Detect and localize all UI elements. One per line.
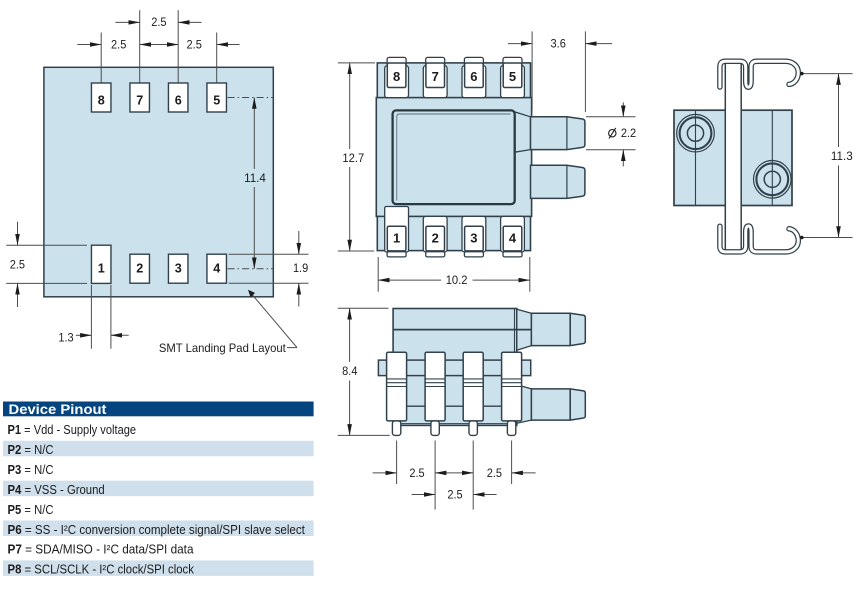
svg-text:2.2: 2.2: [621, 126, 636, 140]
svg-text:8: 8: [98, 93, 105, 107]
svg-text:3: 3: [175, 262, 182, 276]
svg-text:7: 7: [136, 93, 143, 107]
svg-text:1: 1: [98, 262, 105, 276]
svg-text:11.3: 11.3: [831, 149, 853, 163]
svg-text:2.5: 2.5: [447, 487, 462, 501]
svg-text:2: 2: [136, 262, 143, 276]
svg-text:3: 3: [470, 231, 477, 246]
svg-text:3.6: 3.6: [551, 36, 566, 50]
svg-text:P4 = VSS - Ground: P4 = VSS - Ground: [8, 483, 105, 497]
svg-text:Device Pinout: Device Pinout: [9, 402, 108, 417]
svg-text:P3 = N/C: P3 = N/C: [8, 463, 54, 477]
svg-text:2.5: 2.5: [10, 258, 25, 272]
svg-text:P1 = Vdd - Supply voltage: P1 = Vdd - Supply voltage: [8, 423, 137, 437]
svg-text:1.3: 1.3: [58, 330, 73, 344]
svg-text:SMT Landing Pad Layout: SMT Landing Pad Layout: [159, 341, 287, 355]
svg-text:8.4: 8.4: [342, 364, 357, 378]
svg-text:7: 7: [432, 69, 439, 84]
svg-text:P6 = SS - I²C conversion compl: P6 = SS - I²C conversion complete signal…: [8, 523, 306, 537]
svg-text:P2 = N/C: P2 = N/C: [8, 443, 54, 457]
svg-text:P8 = SCL/SCLK - I²C clock/SPI: P8 = SCL/SCLK - I²C clock/SPI clock: [8, 563, 195, 577]
svg-text:2.5: 2.5: [187, 37, 202, 51]
svg-text:1: 1: [393, 231, 400, 246]
svg-text:2.5: 2.5: [409, 466, 424, 480]
svg-text:12.7: 12.7: [342, 151, 364, 165]
svg-text:6: 6: [470, 69, 477, 84]
svg-text:11.4: 11.4: [244, 171, 266, 185]
svg-text:2.5: 2.5: [151, 15, 166, 29]
svg-text:2.5: 2.5: [111, 37, 126, 51]
svg-text:5: 5: [509, 69, 516, 84]
svg-text:P5 = N/C: P5 = N/C: [8, 503, 54, 517]
svg-text:4: 4: [213, 262, 220, 276]
svg-text:6: 6: [175, 93, 182, 107]
svg-text:2: 2: [432, 231, 439, 246]
svg-text:2.5: 2.5: [487, 466, 502, 480]
svg-text:8: 8: [393, 69, 400, 84]
svg-text:10.2: 10.2: [446, 273, 468, 287]
svg-text:4: 4: [509, 231, 517, 246]
svg-text:1.9: 1.9: [293, 261, 308, 275]
svg-text:P7 = SDA/MISO - I²C data/SPI d: P7 = SDA/MISO - I²C data/SPI data: [8, 543, 194, 557]
svg-text:5: 5: [213, 93, 220, 107]
